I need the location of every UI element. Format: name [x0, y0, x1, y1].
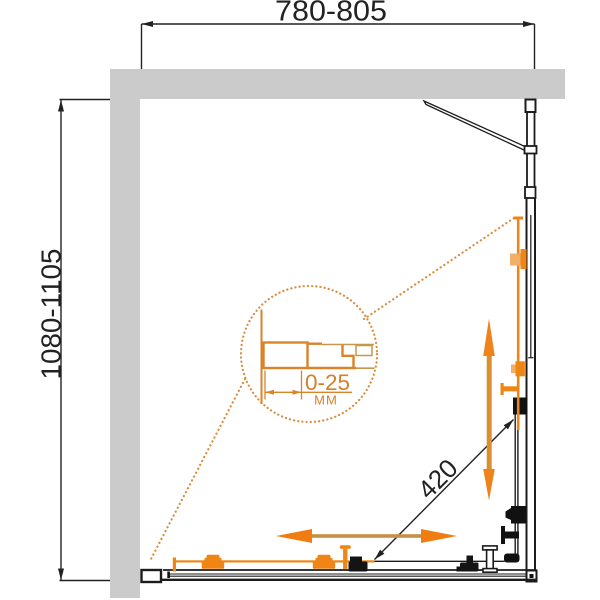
svg-text:0-25: 0-25 — [305, 370, 350, 395]
svg-text:780-805: 780-805 — [275, 0, 387, 28]
svg-text:1080-1105: 1080-1105 — [36, 249, 67, 380]
svg-text:420: 420 — [412, 453, 464, 505]
svg-text:MM: MM — [314, 393, 338, 408]
